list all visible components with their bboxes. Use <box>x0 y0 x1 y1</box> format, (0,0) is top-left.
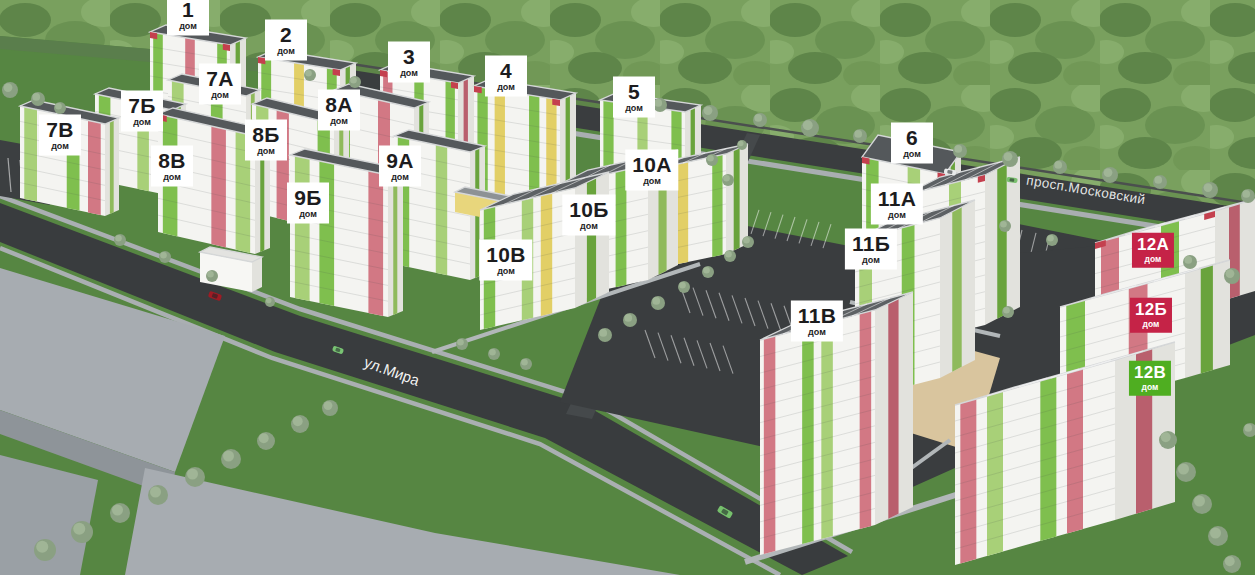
building-label-1[interactable]: 1дом <box>167 0 209 36</box>
building-sub-label: дом <box>272 47 300 56</box>
building-label-11В[interactable]: 11Вдом <box>791 301 843 342</box>
building-sub-label: дом <box>46 142 74 151</box>
building-number: 8В <box>158 150 186 171</box>
building-label-8Б[interactable]: 8Бдом <box>245 120 287 161</box>
building-number: 11Б <box>852 233 890 254</box>
building-number: 10В <box>486 244 525 265</box>
building-label-10А[interactable]: 10Адом <box>625 150 678 191</box>
building-sub-label: дом <box>128 118 156 127</box>
building-label-6[interactable]: 6дом <box>891 123 933 164</box>
building-number: 12В <box>1134 364 1166 381</box>
building-number: 8Б <box>252 124 280 145</box>
building-sub-label: дом <box>206 91 234 100</box>
building-number: 12Б <box>1135 301 1167 318</box>
building-sub-label: дом <box>252 147 280 156</box>
building-number: 3 <box>395 46 423 67</box>
building-label-7А[interactable]: 7Адом <box>199 64 241 105</box>
building-sub-label: дом <box>798 328 836 337</box>
building-sub-label: дом <box>569 222 608 231</box>
building-label-9Б[interactable]: 9Бдом <box>287 183 329 224</box>
building-sub-label: дом <box>898 150 926 159</box>
building-label-7В[interactable]: 7Вдом <box>39 115 81 156</box>
building-sub-label: дом <box>325 117 353 126</box>
building-sub-label: дом <box>386 173 414 182</box>
building-number: 7Б <box>128 95 156 116</box>
building-label-3[interactable]: 3дом <box>388 42 430 83</box>
building-sub-label: дом <box>1134 383 1166 392</box>
building-label-5[interactable]: 5дом <box>613 77 655 118</box>
building-label-11А[interactable]: 11Адом <box>871 184 923 225</box>
building-number: 10А <box>632 154 671 175</box>
building-label-8А[interactable]: 8Адом <box>318 90 360 131</box>
building-sub-label: дом <box>492 83 520 92</box>
building-number: 7А <box>206 68 234 89</box>
building-label-12Б[interactable]: 12Бдом <box>1130 298 1172 333</box>
building-sub-label: дом <box>620 104 648 113</box>
building-number: 6 <box>898 127 926 148</box>
building-number: 1 <box>174 0 202 20</box>
building-label-11Б[interactable]: 11Бдом <box>845 229 897 270</box>
building-sub-label: дом <box>852 256 890 265</box>
building-label-10Б[interactable]: 10Бдом <box>562 195 615 236</box>
building-sub-label: дом <box>395 69 423 78</box>
building-label-12А[interactable]: 12Адом <box>1132 233 1174 268</box>
building-number: 7В <box>46 119 74 140</box>
building-number: 12А <box>1137 236 1169 253</box>
building-number: 11В <box>798 305 836 326</box>
building-number: 9А <box>386 150 414 171</box>
building-number: 2 <box>272 24 300 45</box>
building-label-8В[interactable]: 8Вдом <box>151 146 193 187</box>
building-number: 5 <box>620 81 648 102</box>
building-label-9А[interactable]: 9Адом <box>379 146 421 187</box>
building-sub-label: дом <box>1137 255 1169 264</box>
building-sub-label: дом <box>486 267 525 276</box>
building-label-2[interactable]: 2дом <box>265 20 307 61</box>
building-sub-label: дом <box>158 173 186 182</box>
building-sub-label: дом <box>174 22 202 31</box>
building-label-10В[interactable]: 10Вдом <box>479 240 532 281</box>
building-sub-label: дом <box>294 210 322 219</box>
building-number: 8А <box>325 94 353 115</box>
building-number: 9Б <box>294 187 322 208</box>
building-sub-label: дом <box>632 177 671 186</box>
building-number: 10Б <box>569 199 608 220</box>
site-plan: 1дом2дом3дом4дом5дом6дом7Адом7Бдом7Вдом8… <box>0 0 1255 575</box>
building-number: 11А <box>878 188 916 209</box>
building-label-4[interactable]: 4дом <box>485 56 527 97</box>
building-label-7Б[interactable]: 7Бдом <box>121 91 163 132</box>
building-number: 4 <box>492 60 520 81</box>
building-label-12В[interactable]: 12Вдом <box>1129 361 1171 396</box>
building-sub-label: дом <box>1135 320 1167 329</box>
building-sub-label: дом <box>878 211 916 220</box>
